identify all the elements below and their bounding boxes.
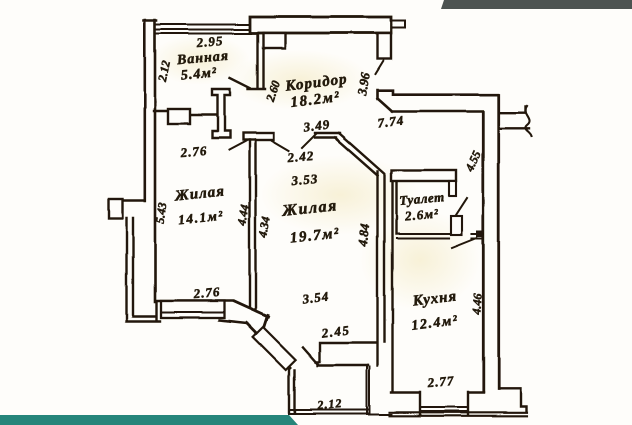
svg-text:5.4м²: 5.4м²	[180, 65, 217, 83]
svg-text:2.6м²: 2.6м²	[403, 206, 439, 224]
svg-text:2.77: 2.77	[426, 373, 455, 390]
svg-text:5.43: 5.43	[153, 202, 170, 225]
svg-text:3.53: 3.53	[290, 171, 319, 188]
svg-text:4.46: 4.46	[469, 293, 485, 316]
svg-text:2.42: 2.42	[286, 148, 315, 165]
svg-text:2.76: 2.76	[192, 284, 221, 301]
svg-text:4.84: 4.84	[355, 222, 372, 248]
svg-text:2.76: 2.76	[179, 143, 208, 160]
svg-text:2.95: 2.95	[195, 33, 224, 50]
svg-text:2.12: 2.12	[316, 396, 343, 412]
